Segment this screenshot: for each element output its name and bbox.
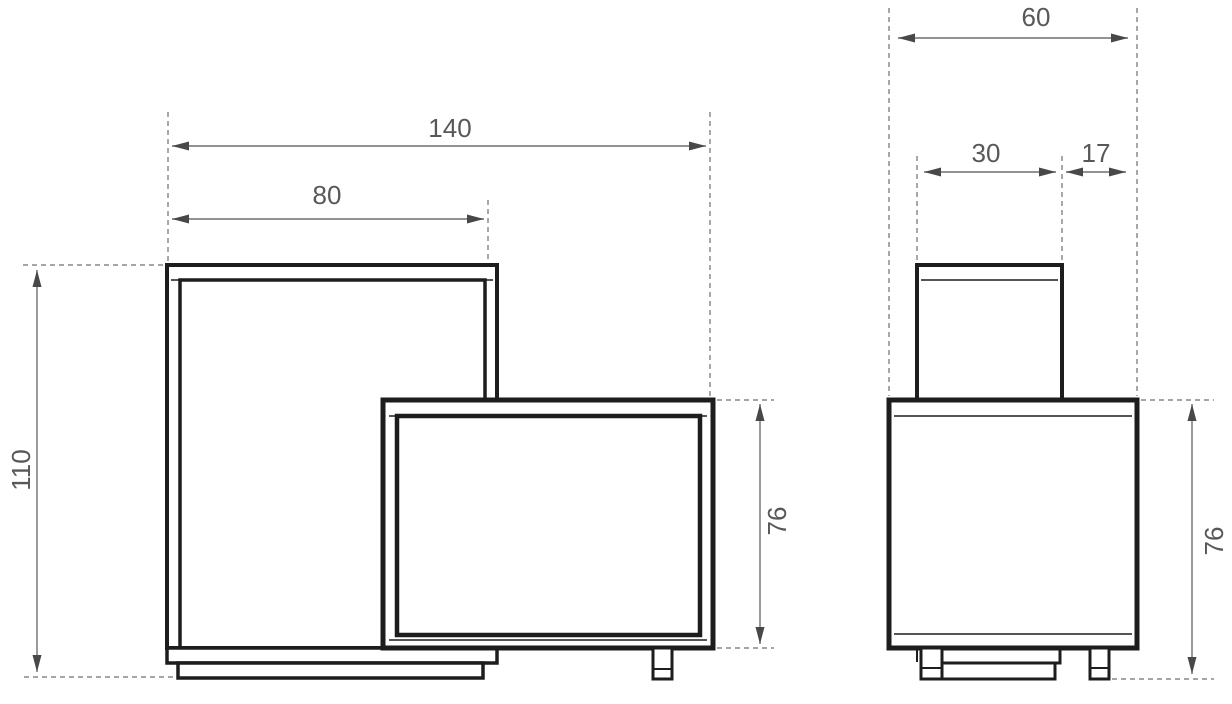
- arrowhead-icon: [689, 142, 706, 151]
- dimension-label-side-lower-section-height: 76: [1199, 527, 1229, 556]
- arrowhead-icon: [756, 627, 765, 644]
- arrowhead-icon: [172, 142, 189, 151]
- side-plinth-upper-step: [942, 649, 1060, 663]
- furniture-dimension-drawing: 140 80 110 76 60 30: [0, 0, 1232, 704]
- dim-front-total-height: 110: [6, 265, 176, 677]
- arrowhead-icon: [33, 270, 42, 287]
- front-view: [167, 265, 713, 679]
- front-plinth-lower-step: [178, 663, 483, 678]
- arrowhead-icon: [1111, 34, 1128, 43]
- dimension-label-lower-section-height: 76: [762, 507, 792, 536]
- dimension-label-upper-section-depth: 30: [972, 138, 1001, 168]
- dimension-label-tall-section-width: 80: [313, 180, 342, 210]
- dim-front-tall-section-width: 80: [172, 180, 488, 262]
- side-lower-section-outline: [889, 400, 1137, 648]
- side-plinth-lower-step: [942, 663, 1055, 679]
- dimension-label-front-overhang-depth: 17: [1082, 138, 1111, 168]
- technical-drawing-canvas: 140 80 110 76 60 30: [0, 0, 1232, 704]
- side-left-foot: [921, 648, 942, 679]
- side-right-foot: [1090, 648, 1109, 679]
- arrowhead-icon: [467, 215, 484, 224]
- side-upper-section-outline: [917, 265, 1062, 400]
- dim-front-lower-section-height: 76: [717, 400, 792, 648]
- arrowhead-icon: [1188, 404, 1197, 421]
- dimension-label-total-height: 110: [6, 449, 36, 490]
- dimension-label-total-width: 140: [428, 113, 471, 143]
- arrowhead-icon: [1039, 168, 1056, 177]
- arrowhead-icon: [924, 168, 941, 177]
- front-lower-cabinet-outline: [383, 400, 713, 648]
- arrowhead-icon: [1066, 168, 1083, 177]
- arrowhead-icon: [756, 404, 765, 421]
- arrowhead-icon: [898, 34, 915, 43]
- dimension-label-total-depth: 60: [1022, 2, 1051, 32]
- arrowhead-icon: [172, 215, 189, 224]
- arrowhead-icon: [1188, 657, 1197, 674]
- dim-side-upper-section-depth: 30: [917, 138, 1062, 262]
- arrowhead-icon: [33, 655, 42, 672]
- front-lower-cabinet-foot: [653, 648, 672, 679]
- arrowhead-icon: [1109, 168, 1126, 177]
- side-view: [889, 265, 1137, 679]
- dim-side-front-overhang-depth: 17: [1066, 138, 1126, 177]
